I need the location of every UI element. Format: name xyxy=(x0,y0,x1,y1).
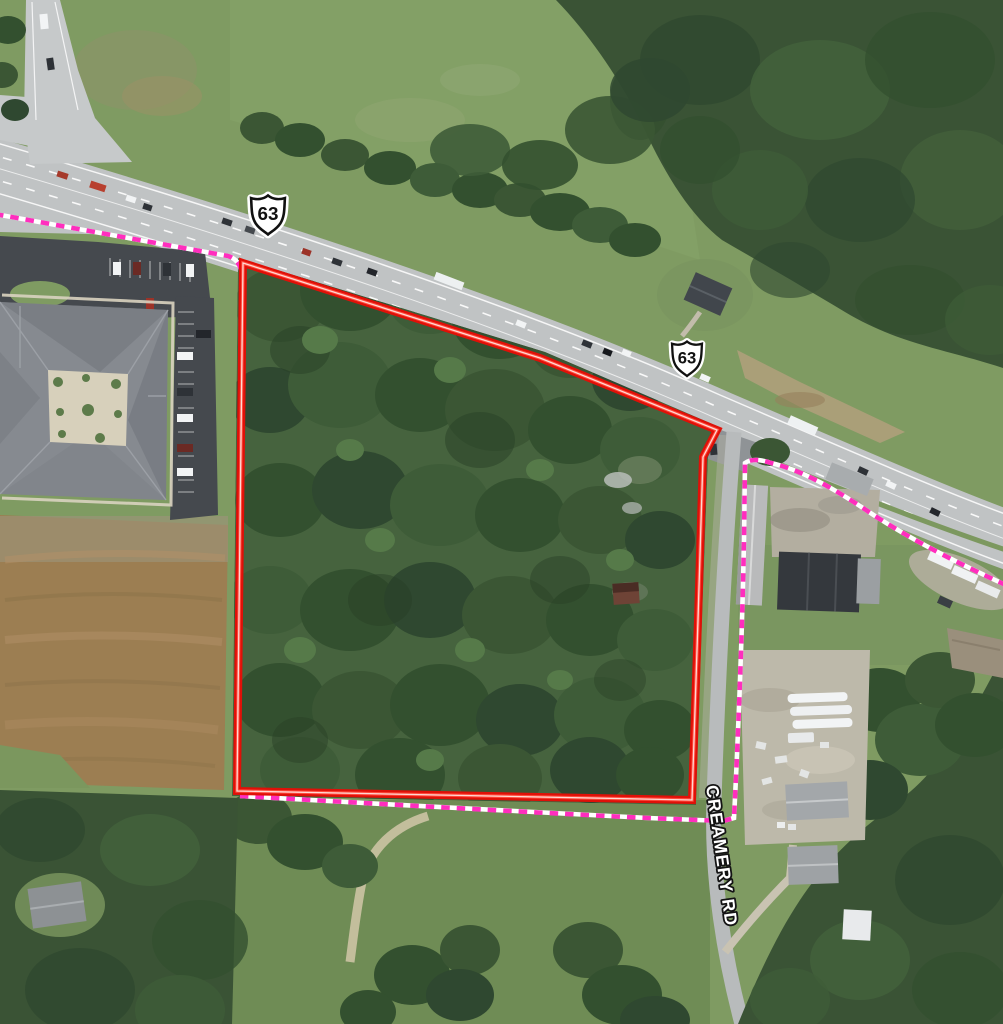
barn-roof xyxy=(787,845,838,885)
highway-shield-north: 63 xyxy=(251,195,285,234)
shield-route-number: 63 xyxy=(678,348,697,367)
shed-roof xyxy=(612,582,639,605)
house-roof xyxy=(27,881,86,928)
shop-roof xyxy=(785,781,849,820)
forest-bottom-left xyxy=(0,790,248,1024)
apartment-complex xyxy=(0,236,218,520)
highway-shield-south: 63 xyxy=(672,341,702,376)
shield-route-number: 63 xyxy=(258,203,279,224)
aerial-basemap: 63 63 CREAMERY RD xyxy=(0,0,1003,1024)
aerial-map-viewport[interactable]: 63 63 CREAMERY RD xyxy=(0,0,1003,1024)
dirt-field xyxy=(0,515,228,790)
